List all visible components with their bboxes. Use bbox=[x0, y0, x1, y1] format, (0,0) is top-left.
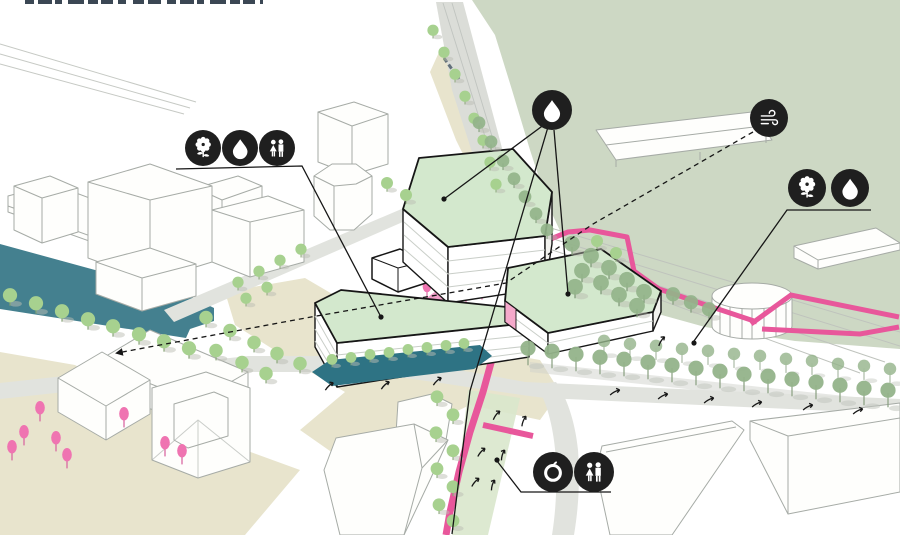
scene-canvas bbox=[0, 0, 900, 535]
flower-gear-icon bbox=[788, 169, 826, 207]
badge-group-right-pair bbox=[788, 169, 869, 207]
wind-swirl-icon bbox=[750, 99, 788, 137]
flower-gear-icon bbox=[185, 130, 221, 166]
badge-group-center-water bbox=[532, 90, 572, 130]
water-drop-icon bbox=[532, 90, 572, 130]
people-pair-icon bbox=[574, 452, 614, 492]
people-pair-icon bbox=[259, 130, 295, 166]
badge-group-bottom-pair bbox=[533, 452, 614, 492]
water-drop-icon bbox=[222, 130, 258, 166]
apple-icon bbox=[533, 452, 573, 492]
badge-group-left-trio bbox=[185, 130, 295, 166]
water-drop-icon bbox=[831, 169, 869, 207]
badge-group-wind bbox=[750, 99, 788, 137]
masterplan-diagram bbox=[0, 0, 900, 535]
